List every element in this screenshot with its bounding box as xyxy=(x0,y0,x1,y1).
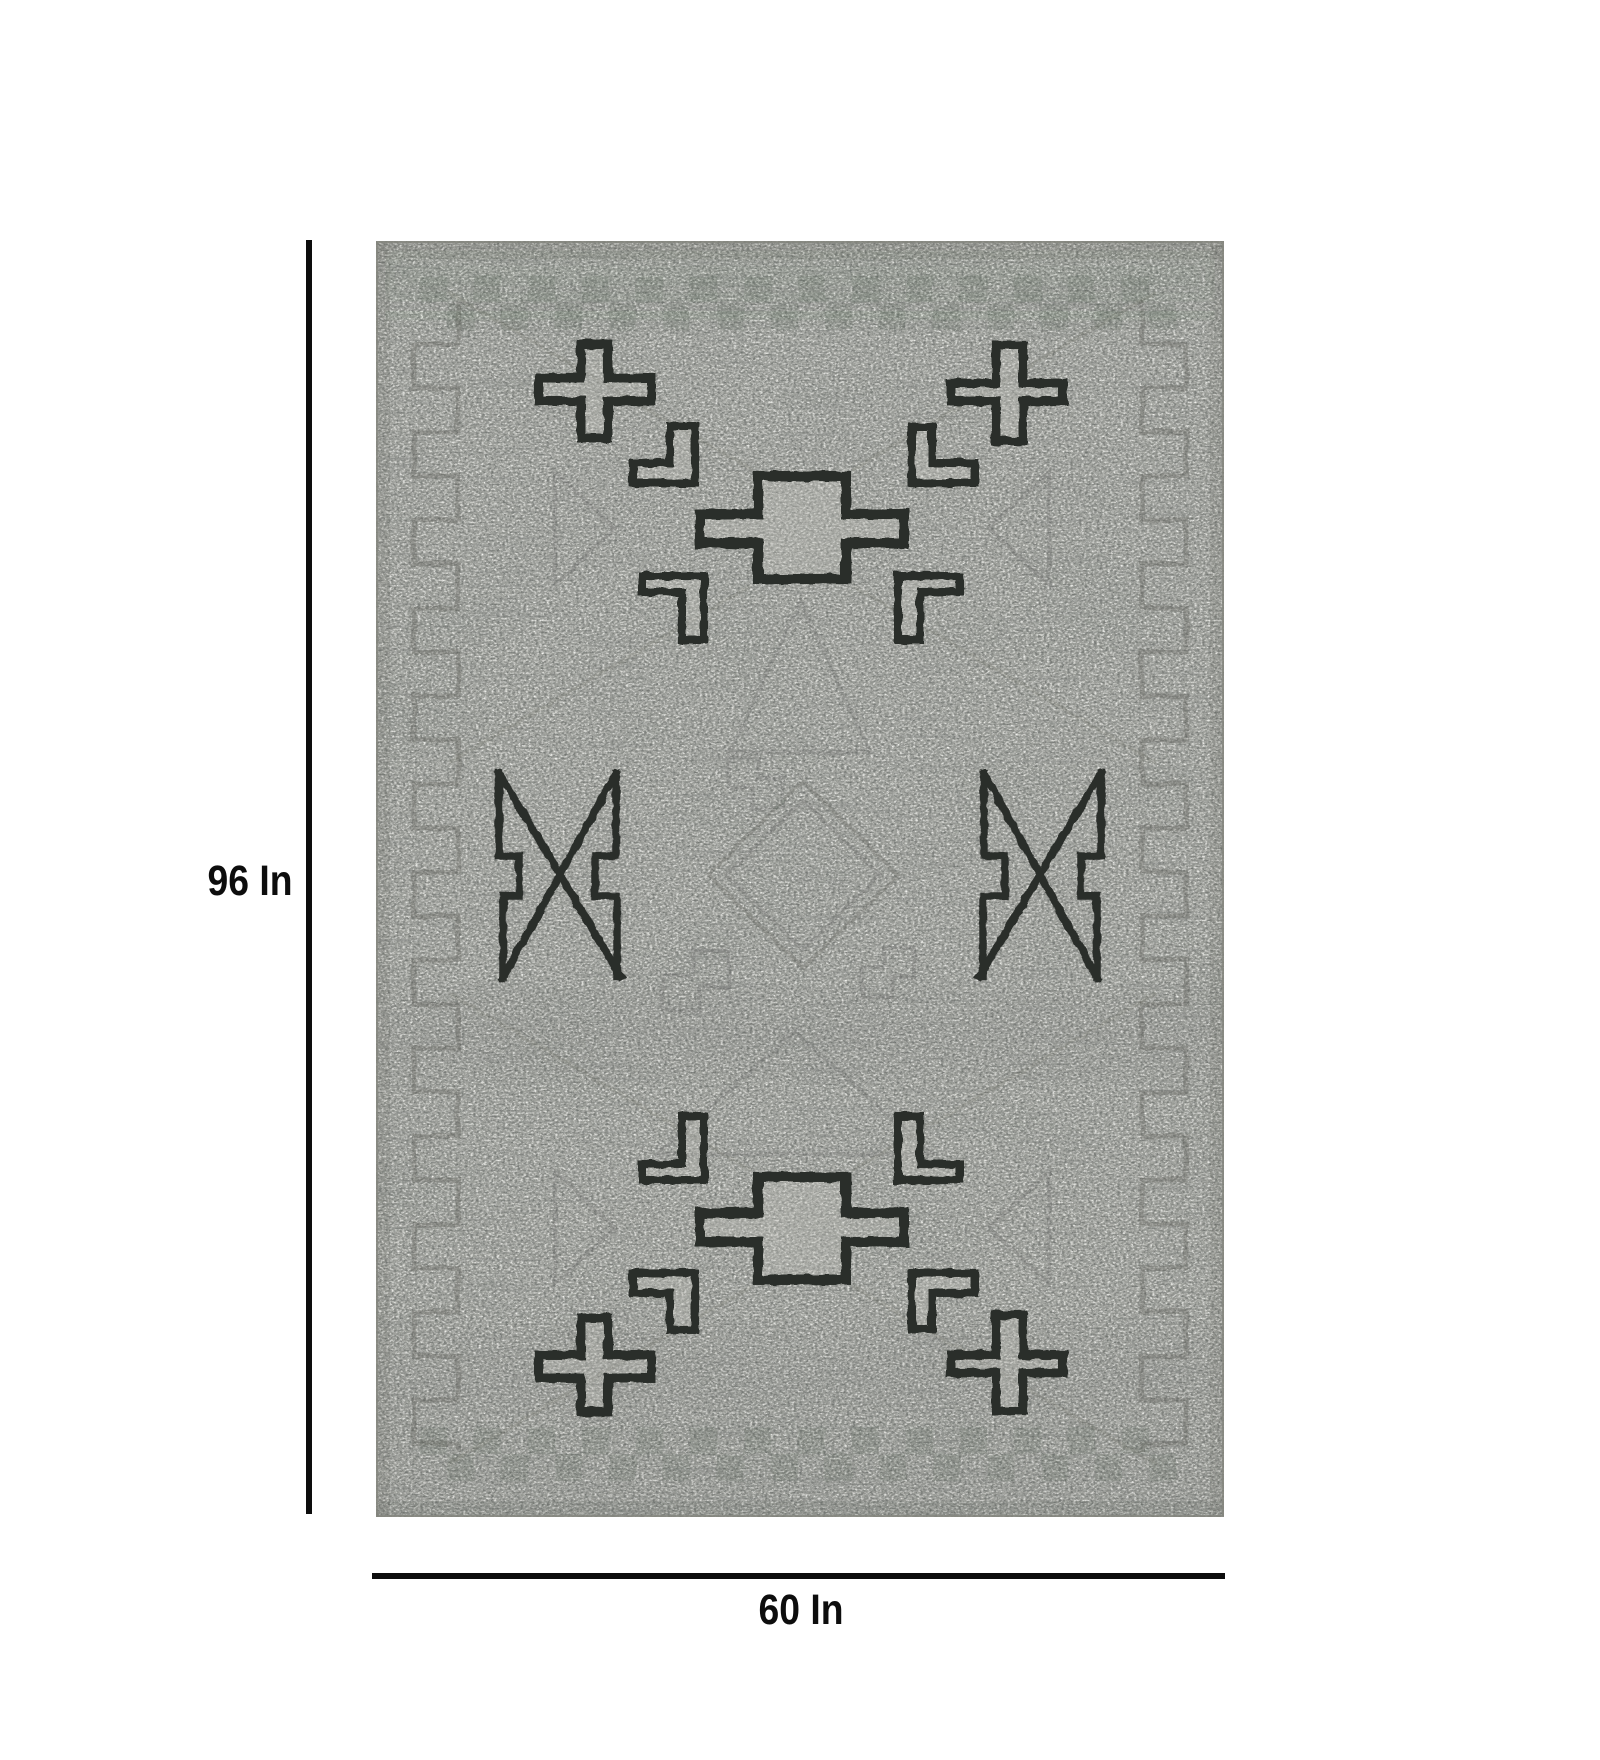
svg-text:96 In: 96 In xyxy=(208,857,293,905)
svg-text:60 In: 60 In xyxy=(759,1586,844,1634)
